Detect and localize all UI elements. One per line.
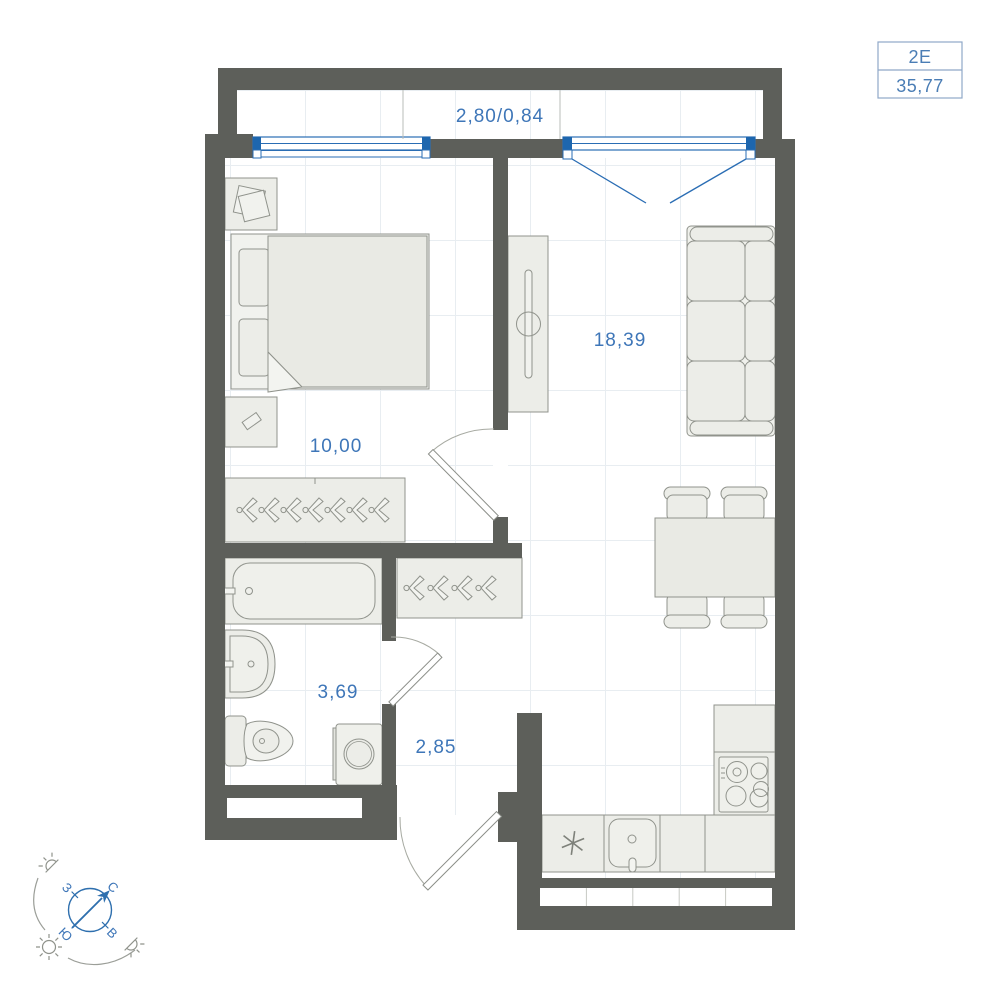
chair <box>664 594 710 628</box>
wall-bedroom-door-jamb <box>493 517 508 543</box>
wall-top <box>218 68 782 90</box>
wall-bedroom-living <box>493 158 508 430</box>
sunset-icon <box>37 851 59 873</box>
bed-blanket <box>268 236 427 387</box>
bathroom-sink <box>220 630 275 698</box>
unit-area-value: 35,77 <box>896 76 944 96</box>
hall-wardrobe <box>397 558 522 618</box>
balcony-dimension-label: 2,80/0,84 <box>456 106 544 127</box>
wall-outer-left <box>205 134 225 840</box>
unit-type-value: 2Е <box>908 47 931 67</box>
sunrise-icon <box>124 937 146 959</box>
chair <box>721 487 767 521</box>
sun-icon <box>36 934 62 960</box>
bathroom-area-label: 3,69 <box>318 682 359 703</box>
wall-bedroom-bottom <box>225 543 522 558</box>
dining-table <box>655 518 775 597</box>
floor-plan-page: 2,80/0,84 18,39 10,00 3,69 2,85 2Е 35,77 <box>0 0 1000 1000</box>
entrance-door <box>400 812 501 890</box>
compass-icon: С Ю З В <box>34 851 147 966</box>
bed-pillow <box>239 319 269 376</box>
balcony-window <box>253 137 430 158</box>
unit-info-box: 2Е 35,77 <box>878 42 962 98</box>
sun-path-arc <box>34 878 45 930</box>
nightstand-decor <box>238 190 270 222</box>
niche-slot <box>227 798 362 818</box>
wall-outer-right <box>775 139 795 878</box>
stove <box>719 757 769 812</box>
chair <box>664 487 710 521</box>
bed-pillow <box>239 249 269 306</box>
washing-machine <box>333 724 384 785</box>
wall-bath-right-upper <box>382 558 396 641</box>
bedroom-area-label: 10,00 <box>310 436 363 457</box>
chair <box>721 594 767 628</box>
sofa <box>687 226 775 436</box>
wall-bath-right-lower <box>382 704 396 790</box>
hallway-area-label: 2,85 <box>416 737 457 758</box>
sun-path-arc <box>68 950 135 965</box>
bedroom-wardrobe <box>225 478 405 542</box>
niche-slot <box>540 888 772 906</box>
wall-window-pier <box>428 139 563 158</box>
kitchen-sink <box>609 819 656 872</box>
bathtub <box>220 558 382 624</box>
tv-icon <box>525 270 532 378</box>
living-area-label: 18,39 <box>594 330 647 351</box>
floor-plan: 2,80/0,84 18,39 10,00 3,69 2,85 2Е 35,77 <box>0 0 1000 1000</box>
kitchen-counter <box>542 815 775 872</box>
